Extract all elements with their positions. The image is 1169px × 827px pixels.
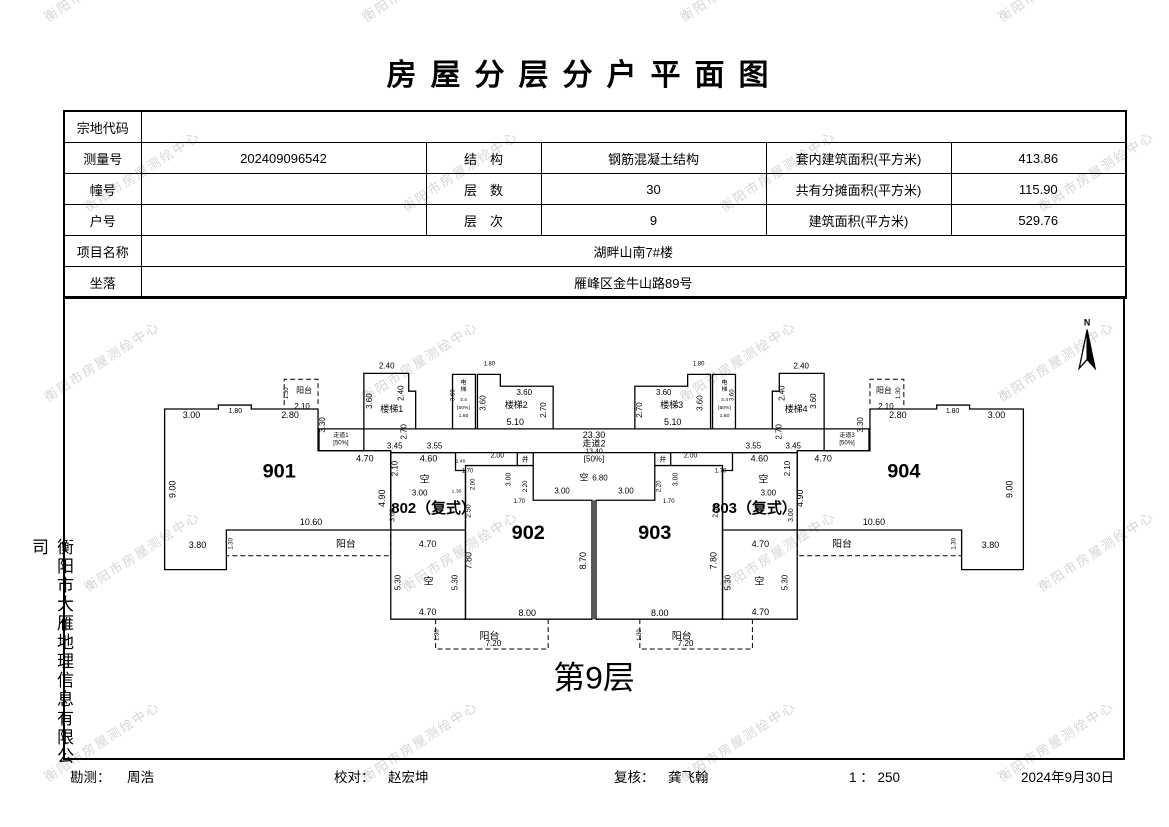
- dim-label: 3.45: [786, 442, 802, 451]
- room-label: 空: [424, 575, 434, 588]
- dim-label: 2.00: [470, 478, 476, 490]
- dim-label: 10.60: [863, 517, 885, 527]
- dim-label: 5.10: [507, 417, 524, 427]
- inner-area-label: 套内建筑面积(平方米): [766, 143, 951, 174]
- dim-label: 3.4: [721, 397, 728, 403]
- dim-label: [50%]: [718, 405, 731, 411]
- dim-label: 2.40: [777, 385, 786, 401]
- dim-label: 2.20: [657, 480, 663, 492]
- dim-label: 1.30: [952, 537, 958, 549]
- dim-label: 2.50: [465, 504, 472, 518]
- room-label: 阳台: [296, 385, 312, 395]
- dim-label: 2.00: [684, 453, 698, 460]
- dim-label: 1.80: [693, 361, 705, 367]
- dim-label: 4.60: [420, 454, 437, 464]
- room-label: 电: [722, 378, 728, 386]
- balcony-outline: [226, 530, 390, 556]
- dim-label: 3.30: [856, 417, 865, 433]
- building-no-label: 幢号: [64, 174, 141, 205]
- room-label: 空: [758, 472, 768, 485]
- dim-label: 2.70: [539, 402, 548, 418]
- dim-label: [50%]: [457, 405, 470, 411]
- dim-label: 901: [263, 460, 296, 482]
- table-row: 幢号 层 数 30 共有分摊面积(平方米) 115.90: [64, 174, 1126, 205]
- dim-label: 4.60: [751, 454, 768, 464]
- dim-label: 803（复式）: [712, 499, 797, 517]
- dim-label: 1.30: [637, 629, 643, 641]
- floor-plan-frame: 3.001.802.80阳台1.302.103.309.009013.8010.…: [63, 296, 1125, 760]
- dim-label: 8.00: [519, 608, 536, 618]
- dim-label: 3.60: [517, 388, 533, 397]
- dim-label: 3.55: [746, 442, 762, 451]
- surveyor-label: 勘测：: [70, 766, 111, 786]
- room-label: 走道1: [333, 431, 349, 439]
- room-label: 阳台: [832, 537, 852, 550]
- dim-label: 1.30: [228, 537, 234, 549]
- room-label: 楼梯2: [505, 399, 528, 410]
- dim-label: 3.60: [696, 395, 705, 411]
- dim-label: 1.30: [435, 629, 441, 641]
- dim-label: 1.60: [720, 413, 730, 419]
- dim-label: 3.60: [809, 393, 818, 409]
- dim-label: 2.10: [878, 402, 894, 411]
- dim-label: 902: [512, 522, 545, 544]
- dim-label: 3.80: [189, 540, 206, 550]
- dim-label: 1.30: [896, 387, 902, 399]
- unit-no-value: [141, 205, 426, 236]
- balcony-outline: [797, 530, 961, 556]
- dim-label: 4.70: [814, 454, 831, 464]
- dim-label: 2.10: [783, 460, 792, 476]
- inner-area-value: 413.86: [951, 143, 1126, 174]
- floor-label: 层 次: [426, 205, 541, 236]
- room-label: 空: [754, 575, 764, 588]
- checker-label: 校对：: [334, 766, 375, 786]
- dim-label: 9.00: [168, 481, 178, 498]
- location-value: 雁峰区金牛山路89号: [141, 267, 1126, 299]
- dim-label: 8.70: [578, 552, 588, 569]
- company-sidebar-text: 衡阳市大雁地理信息有限公司: [26, 538, 76, 778]
- dim-label: 3.00: [554, 486, 570, 495]
- dim-label: 7.80: [709, 552, 719, 569]
- dim-label: 4.70: [752, 607, 769, 617]
- room-label: 空: [420, 472, 430, 485]
- dim-label: 5.30: [394, 574, 403, 590]
- dim-label: 1.40: [456, 459, 466, 465]
- dim-label: 1.70: [513, 499, 525, 505]
- dim-label: 3.00: [390, 508, 397, 522]
- dim-label: 4.90: [377, 490, 387, 507]
- dim-label: 3.4: [460, 397, 467, 403]
- dim-label: [50%]: [333, 441, 349, 447]
- dim-label: 904: [887, 460, 920, 482]
- shared-area-value: 115.90: [951, 174, 1126, 205]
- room-label: 楼梯4: [785, 403, 808, 414]
- room-label: 走道3: [839, 431, 855, 439]
- dim-label: 4.70: [419, 607, 436, 617]
- dim-label: 5.30: [450, 574, 459, 590]
- room-label: 井: [522, 455, 529, 464]
- north-arrow: [1087, 330, 1095, 369]
- dim-label: 2.20: [523, 480, 529, 492]
- structure-label: 结 构: [426, 143, 541, 174]
- dim-label: 1.30: [284, 387, 290, 399]
- date-label: 2024年9月30日: [1021, 766, 1114, 786]
- gross-area-value: 529.76: [951, 205, 1126, 236]
- table-row: 项目名称 湖畔山南7#楼: [64, 236, 1126, 267]
- room-label: 梯: [461, 385, 467, 393]
- dim-label: 4.70: [752, 539, 769, 549]
- surveyor-name: 周浩: [127, 766, 154, 786]
- dim-label: 8.00: [651, 608, 668, 618]
- dim-label: 2.10: [294, 402, 310, 411]
- dim-label: 2.40: [397, 385, 406, 401]
- dim-label: 2.10: [391, 460, 400, 476]
- page-title: 房屋分层分户平面图: [0, 50, 1169, 94]
- dim-label: 4.70: [356, 454, 373, 464]
- shared-area-label: 共有分摊面积(平方米): [766, 174, 951, 205]
- dim-label: 3.00: [788, 508, 795, 522]
- project-name-label: 项目名称: [64, 236, 141, 267]
- dim-label: 2.70: [400, 424, 409, 440]
- dim-label: 3.00: [505, 473, 512, 487]
- room-label: N: [1084, 318, 1090, 328]
- dim-label: 3.00: [988, 410, 1005, 420]
- project-name-value: 湖畔山南7#楼: [141, 236, 1126, 267]
- dim-label: 3.30: [318, 417, 327, 433]
- room-label: 楼梯1: [380, 403, 403, 414]
- dim-label: 6.80: [592, 473, 608, 482]
- dim-label: 1.80: [946, 408, 960, 415]
- parcel-code-label: 宗地代码: [64, 111, 141, 143]
- room-label: 第9层: [553, 660, 634, 696]
- dim-label: [50%]: [839, 441, 855, 447]
- dim-label: 10.60: [300, 517, 322, 527]
- dim-label: 3.60: [365, 393, 374, 409]
- checker-name: 赵宏坤: [388, 766, 429, 786]
- structure-value: 钢筋混凝土结构: [541, 143, 766, 174]
- page: 衡阳市房屋测绘中心衡阳市房屋测绘中心衡阳市房屋测绘中心衡阳市房屋测绘中心衡阳市房…: [0, 0, 1169, 827]
- dim-label: 5.30: [780, 574, 789, 590]
- dim-label: 9.00: [1004, 481, 1014, 498]
- dim-label: 2.00: [491, 453, 505, 460]
- dim-label: 1.80: [229, 408, 243, 415]
- floor-plan-svg: 3.001.802.80阳台1.302.103.309.009013.8010.…: [65, 298, 1123, 758]
- dim-label: 7.80: [463, 552, 473, 569]
- dim-label: 2.70: [635, 402, 644, 418]
- dim-label: 3.00: [618, 486, 634, 495]
- gross-area-label: 建筑面积(平方米): [766, 205, 951, 236]
- dim-label: 5.10: [664, 417, 681, 427]
- dim-label: 3.60: [478, 395, 487, 411]
- room-label: 电: [461, 378, 467, 386]
- location-label: 坐落: [64, 267, 141, 299]
- survey-no-value: 202409096542: [141, 143, 426, 174]
- wall-outline: [1079, 330, 1087, 369]
- dim-label: 3.55: [427, 442, 443, 451]
- dim-label: 1.60: [459, 413, 469, 419]
- room-label: 楼梯3: [660, 399, 683, 410]
- dim-label: 5.30: [723, 574, 732, 590]
- table-row: 户号 层 次 9 建筑面积(平方米) 529.76: [64, 205, 1126, 236]
- dim-label: 1.70: [462, 468, 474, 474]
- dim-label: [50%]: [584, 455, 604, 464]
- dim-label: 3.00: [183, 410, 200, 420]
- dim-label: 2.80: [281, 410, 298, 420]
- room-label: 梯: [722, 385, 728, 393]
- dim-label: 2.80: [889, 410, 906, 420]
- dim-label: 1.70: [715, 468, 727, 474]
- dim-label: 903: [638, 522, 671, 544]
- room-label: 空: [580, 471, 589, 482]
- reviewer-name: 龚飞翰: [668, 766, 709, 786]
- table-row: 测量号 202409096542 结 构 钢筋混凝土结构 套内建筑面积(平方米)…: [64, 143, 1126, 174]
- dim-label: 3.00: [412, 488, 428, 497]
- balcony-outline: [640, 619, 753, 649]
- dim-label: 3.00: [673, 473, 680, 487]
- dim-label: 3.45: [387, 442, 403, 451]
- dim-label: 7.20: [486, 639, 502, 648]
- dim-label: 4.70: [419, 539, 436, 549]
- parcel-code-value: [141, 111, 1126, 143]
- dim-label: 1.80: [484, 361, 496, 367]
- storeys-value: 30: [541, 174, 766, 205]
- dim-label: 2.40: [379, 361, 395, 370]
- dim-label: 3.80: [982, 540, 999, 550]
- map-scale: 1 ： 250: [849, 766, 900, 786]
- dim-label: 7.20: [678, 639, 694, 648]
- dim-label: 1.70: [663, 499, 675, 505]
- dim-label: 2.50: [713, 504, 720, 518]
- unit-no-label: 户号: [64, 205, 141, 236]
- dim-label: 1.30: [452, 488, 462, 494]
- floor-value: 9: [541, 205, 766, 236]
- room-label: 阳台: [876, 385, 892, 395]
- content: 房屋分层分户平面图 宗地代码 测量号 202409096542 结 构 钢筋混凝…: [0, 0, 1169, 827]
- dim-label: 3.00: [761, 488, 777, 497]
- dim-label: 802（复式）: [391, 499, 476, 517]
- room-label: 走道2: [583, 438, 606, 449]
- dim-label: 3.60: [656, 388, 672, 397]
- dim-label: 3.60: [451, 389, 457, 401]
- storeys-label: 层 数: [426, 174, 541, 205]
- building-no-value: [141, 174, 426, 205]
- dim-label: 3.60: [729, 389, 735, 401]
- room-label: 井: [659, 455, 666, 464]
- dim-label: 2.40: [793, 361, 809, 370]
- table-row: 坐落 雁峰区金牛山路89号: [64, 267, 1126, 299]
- survey-no-label: 测量号: [64, 143, 141, 174]
- dim-label: 2.70: [774, 424, 783, 440]
- table-row: 宗地代码: [64, 111, 1126, 143]
- reviewer-label: 复核：: [614, 766, 655, 786]
- room-label: 阳台: [336, 537, 356, 550]
- info-table: 宗地代码 测量号 202409096542 结 构 钢筋混凝土结构 套内建筑面积…: [63, 110, 1127, 299]
